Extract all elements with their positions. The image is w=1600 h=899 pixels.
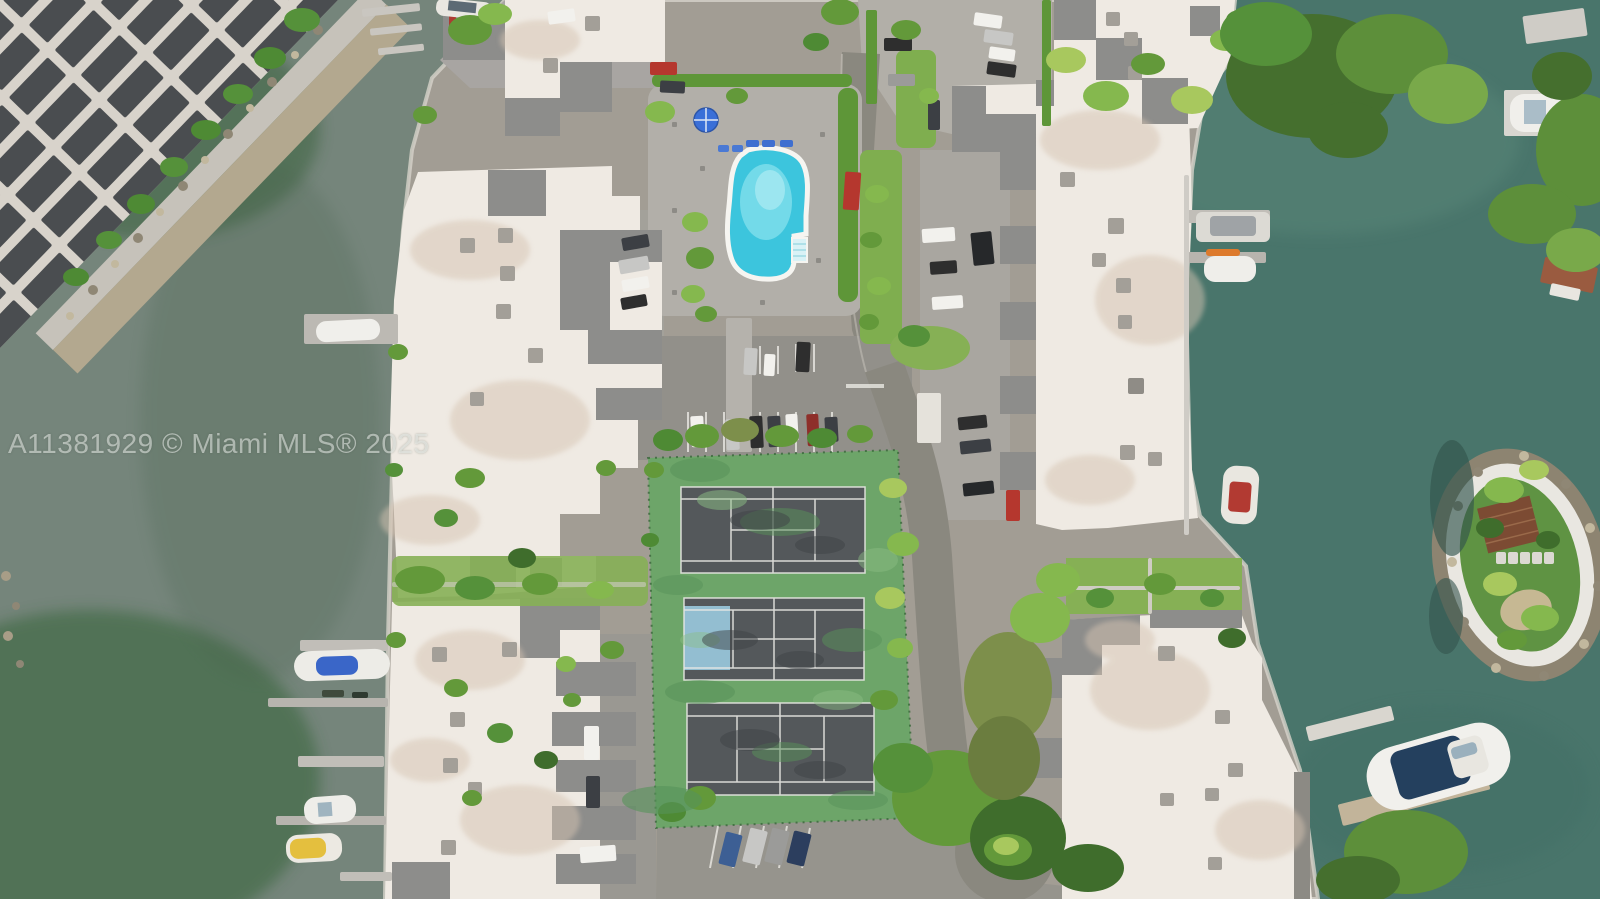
boat-on-lift (316, 318, 381, 342)
skylight (496, 304, 511, 319)
tree (821, 0, 859, 25)
court-moss (697, 490, 747, 510)
tree (522, 573, 558, 595)
bush (455, 468, 485, 488)
bush (1536, 531, 1560, 549)
skylight (1118, 315, 1132, 329)
rock (267, 77, 277, 87)
palm (1083, 81, 1129, 111)
skylight (450, 712, 465, 727)
skylight (1228, 763, 1243, 777)
boat-red-deck (1220, 465, 1260, 525)
bush (191, 120, 221, 140)
rock (66, 312, 74, 320)
skylight (1215, 710, 1230, 724)
lounge-chair (718, 145, 729, 152)
boat-white (303, 794, 357, 825)
gray-roof (1000, 376, 1036, 414)
skylight (1116, 278, 1131, 293)
bush (1144, 573, 1176, 595)
bush (388, 344, 408, 360)
bush (434, 509, 458, 527)
tree (1052, 844, 1124, 892)
rock (246, 104, 254, 112)
court-moss (828, 790, 888, 810)
tree (413, 106, 437, 124)
boat-blue-cover (294, 648, 391, 681)
lounge-chair (746, 140, 759, 147)
palm (1521, 605, 1559, 631)
paver-dot (760, 300, 765, 305)
skylight (543, 58, 558, 73)
palm (681, 285, 705, 303)
tree (455, 576, 495, 600)
island-plank (1544, 552, 1554, 564)
tree (586, 581, 614, 599)
skylight (498, 228, 513, 243)
rock (156, 208, 164, 216)
skylight (1120, 445, 1135, 460)
paver-dot (672, 122, 677, 127)
van-dark (586, 776, 600, 808)
skylight (1158, 646, 1175, 661)
bush (644, 462, 664, 478)
bush (223, 84, 253, 104)
mangrove (1220, 2, 1312, 66)
bush (1218, 628, 1246, 648)
pontoon-boat (1196, 212, 1270, 242)
palm (859, 314, 879, 330)
bush (1476, 518, 1504, 538)
car-dark (928, 100, 940, 130)
court-wear (776, 651, 824, 669)
rock (1579, 639, 1589, 649)
car-white (932, 295, 964, 310)
rock (1473, 467, 1483, 477)
car-white (922, 227, 956, 243)
court-moss (813, 690, 863, 710)
bush (919, 88, 939, 104)
skylight (1060, 172, 1075, 187)
palm (726, 88, 748, 104)
tree (1036, 563, 1080, 597)
palm (1046, 47, 1086, 73)
rock (1491, 663, 1501, 673)
skylight (528, 348, 543, 363)
palm (860, 232, 882, 248)
gray-roof (1000, 452, 1036, 490)
court-wear (720, 729, 780, 751)
palm (1131, 53, 1165, 75)
paver-dot (700, 166, 705, 171)
skylight (1148, 452, 1162, 466)
van-white (584, 726, 599, 760)
court-moss (653, 575, 703, 595)
bush (487, 723, 513, 743)
court-moss (822, 628, 882, 652)
bush (508, 548, 536, 568)
bush (96, 231, 122, 249)
fern (563, 693, 581, 707)
skylight (460, 238, 475, 253)
bush (284, 8, 320, 32)
tree (395, 566, 445, 594)
skylight (470, 392, 484, 406)
bush (462, 790, 482, 806)
gray-roof (1000, 226, 1036, 264)
dock (268, 698, 388, 707)
palm (870, 690, 898, 710)
truck-black (970, 231, 994, 266)
palm (1497, 630, 1527, 650)
bush (63, 268, 89, 286)
kayak-dark (322, 690, 344, 697)
kayak-dark (352, 692, 368, 698)
rock (291, 51, 299, 59)
tree (685, 424, 719, 448)
island-plank (1520, 552, 1530, 564)
gray-roof (1190, 6, 1220, 36)
paver-dot (820, 132, 825, 137)
skylight (500, 266, 515, 281)
rock (1585, 523, 1595, 533)
water-shadow (1429, 578, 1463, 654)
palm (879, 478, 907, 498)
dock (298, 756, 384, 767)
car-black (930, 260, 958, 275)
car-black (884, 38, 912, 51)
paver-dot (816, 258, 821, 263)
car-silver (743, 348, 757, 376)
pool-area (648, 84, 862, 316)
court-wear (795, 536, 845, 554)
tree (803, 33, 829, 51)
pool-highlight (755, 170, 785, 210)
palm (1171, 86, 1213, 114)
skylight (1160, 793, 1174, 806)
court-moss (622, 786, 702, 814)
car-red (843, 171, 862, 210)
gray-roof (392, 862, 450, 899)
skylight (1092, 253, 1106, 267)
rock (111, 260, 119, 268)
trellis-white (917, 393, 941, 443)
island-plank (1532, 552, 1542, 564)
mangrove (1308, 102, 1388, 158)
paver-dot (672, 208, 677, 213)
seawall-cap (1184, 175, 1189, 535)
tree (478, 3, 512, 25)
rock (1539, 671, 1549, 681)
rock (16, 660, 24, 668)
bush (1200, 589, 1224, 607)
tree (847, 425, 873, 443)
gray-roof (1054, 0, 1096, 40)
palm (686, 247, 714, 269)
car-gray (888, 74, 915, 86)
rock (3, 631, 13, 641)
palm (1483, 572, 1517, 596)
bush (534, 751, 558, 769)
skylight (432, 647, 447, 662)
rock (178, 181, 188, 191)
palm (695, 306, 717, 322)
rock (1, 571, 11, 581)
lounge-chair (732, 145, 743, 152)
car-black (795, 342, 811, 373)
gray-roof (1000, 302, 1036, 340)
skylight (502, 642, 517, 657)
mangrove (1532, 52, 1592, 100)
water-shadow (1430, 440, 1474, 556)
bush (600, 641, 624, 659)
court-moss (858, 548, 898, 572)
island-plank (1508, 552, 1518, 564)
skylight (1108, 218, 1124, 234)
rock (201, 156, 209, 164)
rock (12, 602, 20, 610)
kayak-orange (1206, 249, 1240, 256)
tree (898, 325, 930, 347)
bush (891, 20, 921, 40)
lounge-chair (762, 140, 775, 147)
palm (865, 185, 889, 203)
rock (1447, 557, 1457, 567)
skylight (1124, 32, 1138, 46)
rock (88, 285, 98, 295)
gray-roof (1000, 152, 1036, 190)
car-dark (660, 80, 686, 93)
tree (653, 429, 683, 451)
palm (993, 837, 1019, 855)
palm (867, 277, 891, 295)
hedge (866, 10, 877, 104)
lounge-chair (780, 140, 793, 147)
car-red (1006, 490, 1020, 521)
rock (133, 233, 143, 243)
bush (127, 194, 155, 214)
court-wear (702, 630, 758, 650)
gray-roof (1150, 610, 1242, 628)
gray-roof (488, 170, 546, 216)
paver-dot (672, 290, 677, 295)
bush (1086, 588, 1114, 608)
car-red (650, 62, 677, 75)
rock (1519, 451, 1529, 461)
court-wear (794, 761, 846, 779)
palm (1519, 460, 1549, 480)
tree (807, 428, 837, 448)
bush (254, 47, 286, 69)
palm (1484, 477, 1524, 503)
palm (875, 587, 905, 609)
mangrove (1408, 64, 1488, 124)
palm (887, 638, 913, 658)
car-white (579, 845, 616, 863)
pool-umbrella (694, 108, 718, 132)
gray-roof (560, 62, 612, 112)
skylight (1208, 857, 1222, 870)
dock (340, 872, 392, 881)
palm (682, 212, 708, 232)
car-white (763, 354, 775, 377)
court-moss (670, 458, 730, 482)
bush (385, 463, 403, 477)
gray-roof (596, 388, 662, 420)
palm (645, 101, 675, 123)
court-wear (730, 510, 790, 530)
boat-yellow (285, 833, 342, 864)
bush (641, 533, 659, 547)
rock (1561, 479, 1571, 489)
tree (1010, 593, 1070, 643)
tree (873, 743, 933, 793)
bush (444, 679, 468, 697)
gray-roof (505, 98, 560, 136)
court-moss (665, 680, 735, 704)
aerial-photo-stage: A11381929 © Miami MLS® 2025 (0, 0, 1600, 899)
island-plank (1496, 552, 1506, 564)
skylight (443, 758, 458, 773)
tree (721, 418, 759, 442)
fern (556, 656, 576, 672)
tree-large (968, 716, 1040, 800)
skylight (1128, 378, 1144, 394)
skylight (1106, 12, 1120, 26)
bush (596, 460, 616, 476)
skylight (585, 16, 600, 31)
bush (160, 157, 188, 177)
rock (223, 129, 233, 139)
tree (765, 425, 799, 447)
skylight (1205, 788, 1219, 801)
mls-watermark: A11381929 © Miami MLS® 2025 (8, 428, 430, 460)
skylight (441, 840, 456, 855)
bush (386, 632, 406, 648)
